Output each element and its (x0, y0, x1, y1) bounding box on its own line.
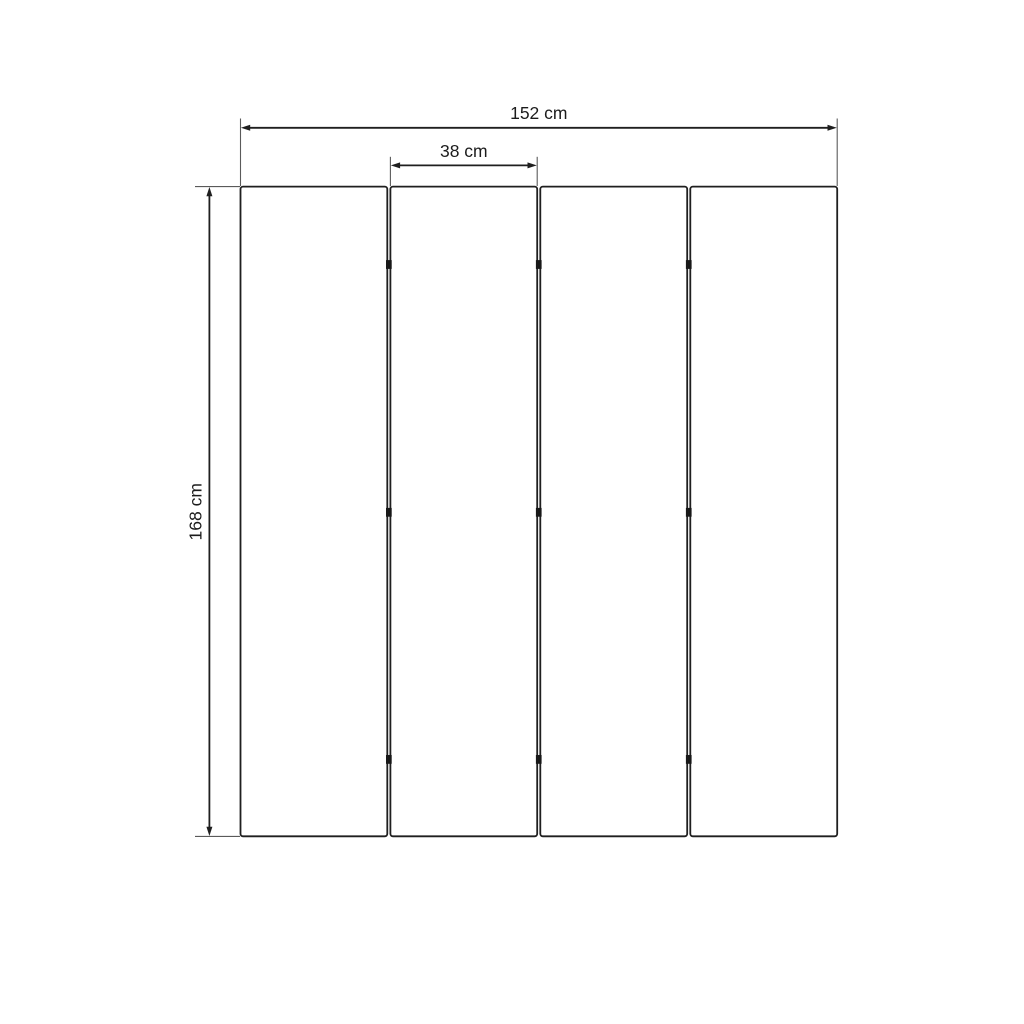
svg-text:38 cm: 38 cm (440, 141, 488, 161)
svg-text:152 cm: 152 cm (510, 103, 567, 123)
svg-text:168 cm: 168 cm (186, 483, 206, 540)
